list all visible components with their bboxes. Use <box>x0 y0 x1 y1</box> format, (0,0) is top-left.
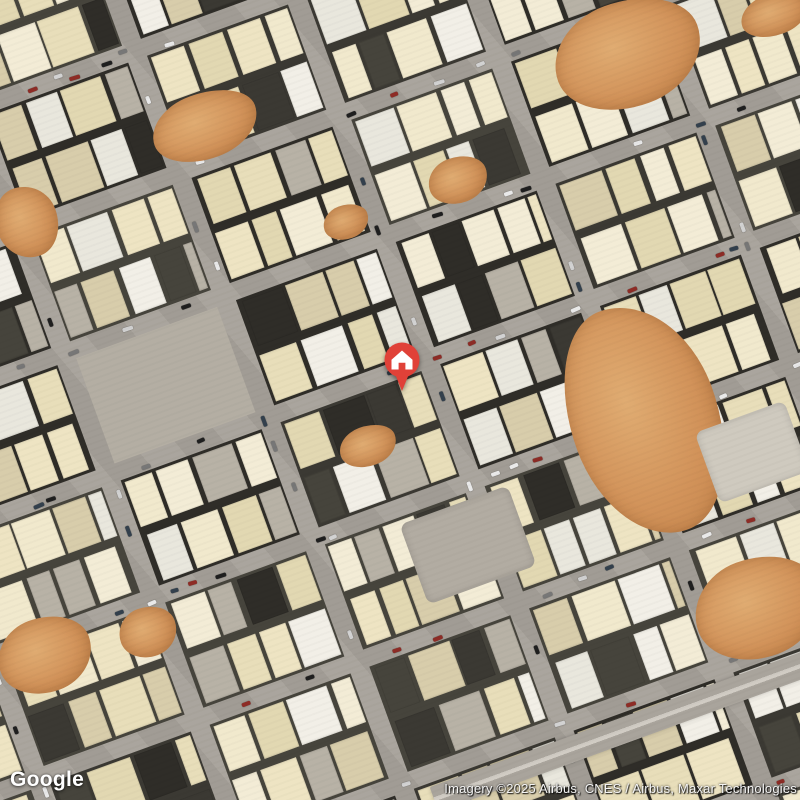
sand-lot <box>334 417 402 474</box>
major-road <box>430 650 800 800</box>
sand-lot <box>143 77 267 176</box>
sand-lot <box>535 284 754 555</box>
open-lot <box>399 485 536 604</box>
sand-lot <box>0 178 68 267</box>
imagery-overlays <box>0 0 800 800</box>
sand-lot <box>681 539 800 677</box>
sand-lot <box>0 604 102 707</box>
property-marker[interactable] <box>381 341 423 393</box>
sand-lot <box>422 148 494 212</box>
sand-lot <box>319 198 374 246</box>
google-logo[interactable]: Google <box>10 768 84 792</box>
satellite-map-canvas[interactable]: Google Imagery ©2025 Airbus, CNES / Airb… <box>0 0 800 800</box>
house-pin-icon <box>381 341 423 393</box>
sand-lot <box>539 0 716 129</box>
sand-lot <box>735 0 800 46</box>
map-attribution: Imagery ©2025 Airbus, CNES / Airbus, Max… <box>444 781 797 796</box>
sand-lot <box>112 599 184 666</box>
